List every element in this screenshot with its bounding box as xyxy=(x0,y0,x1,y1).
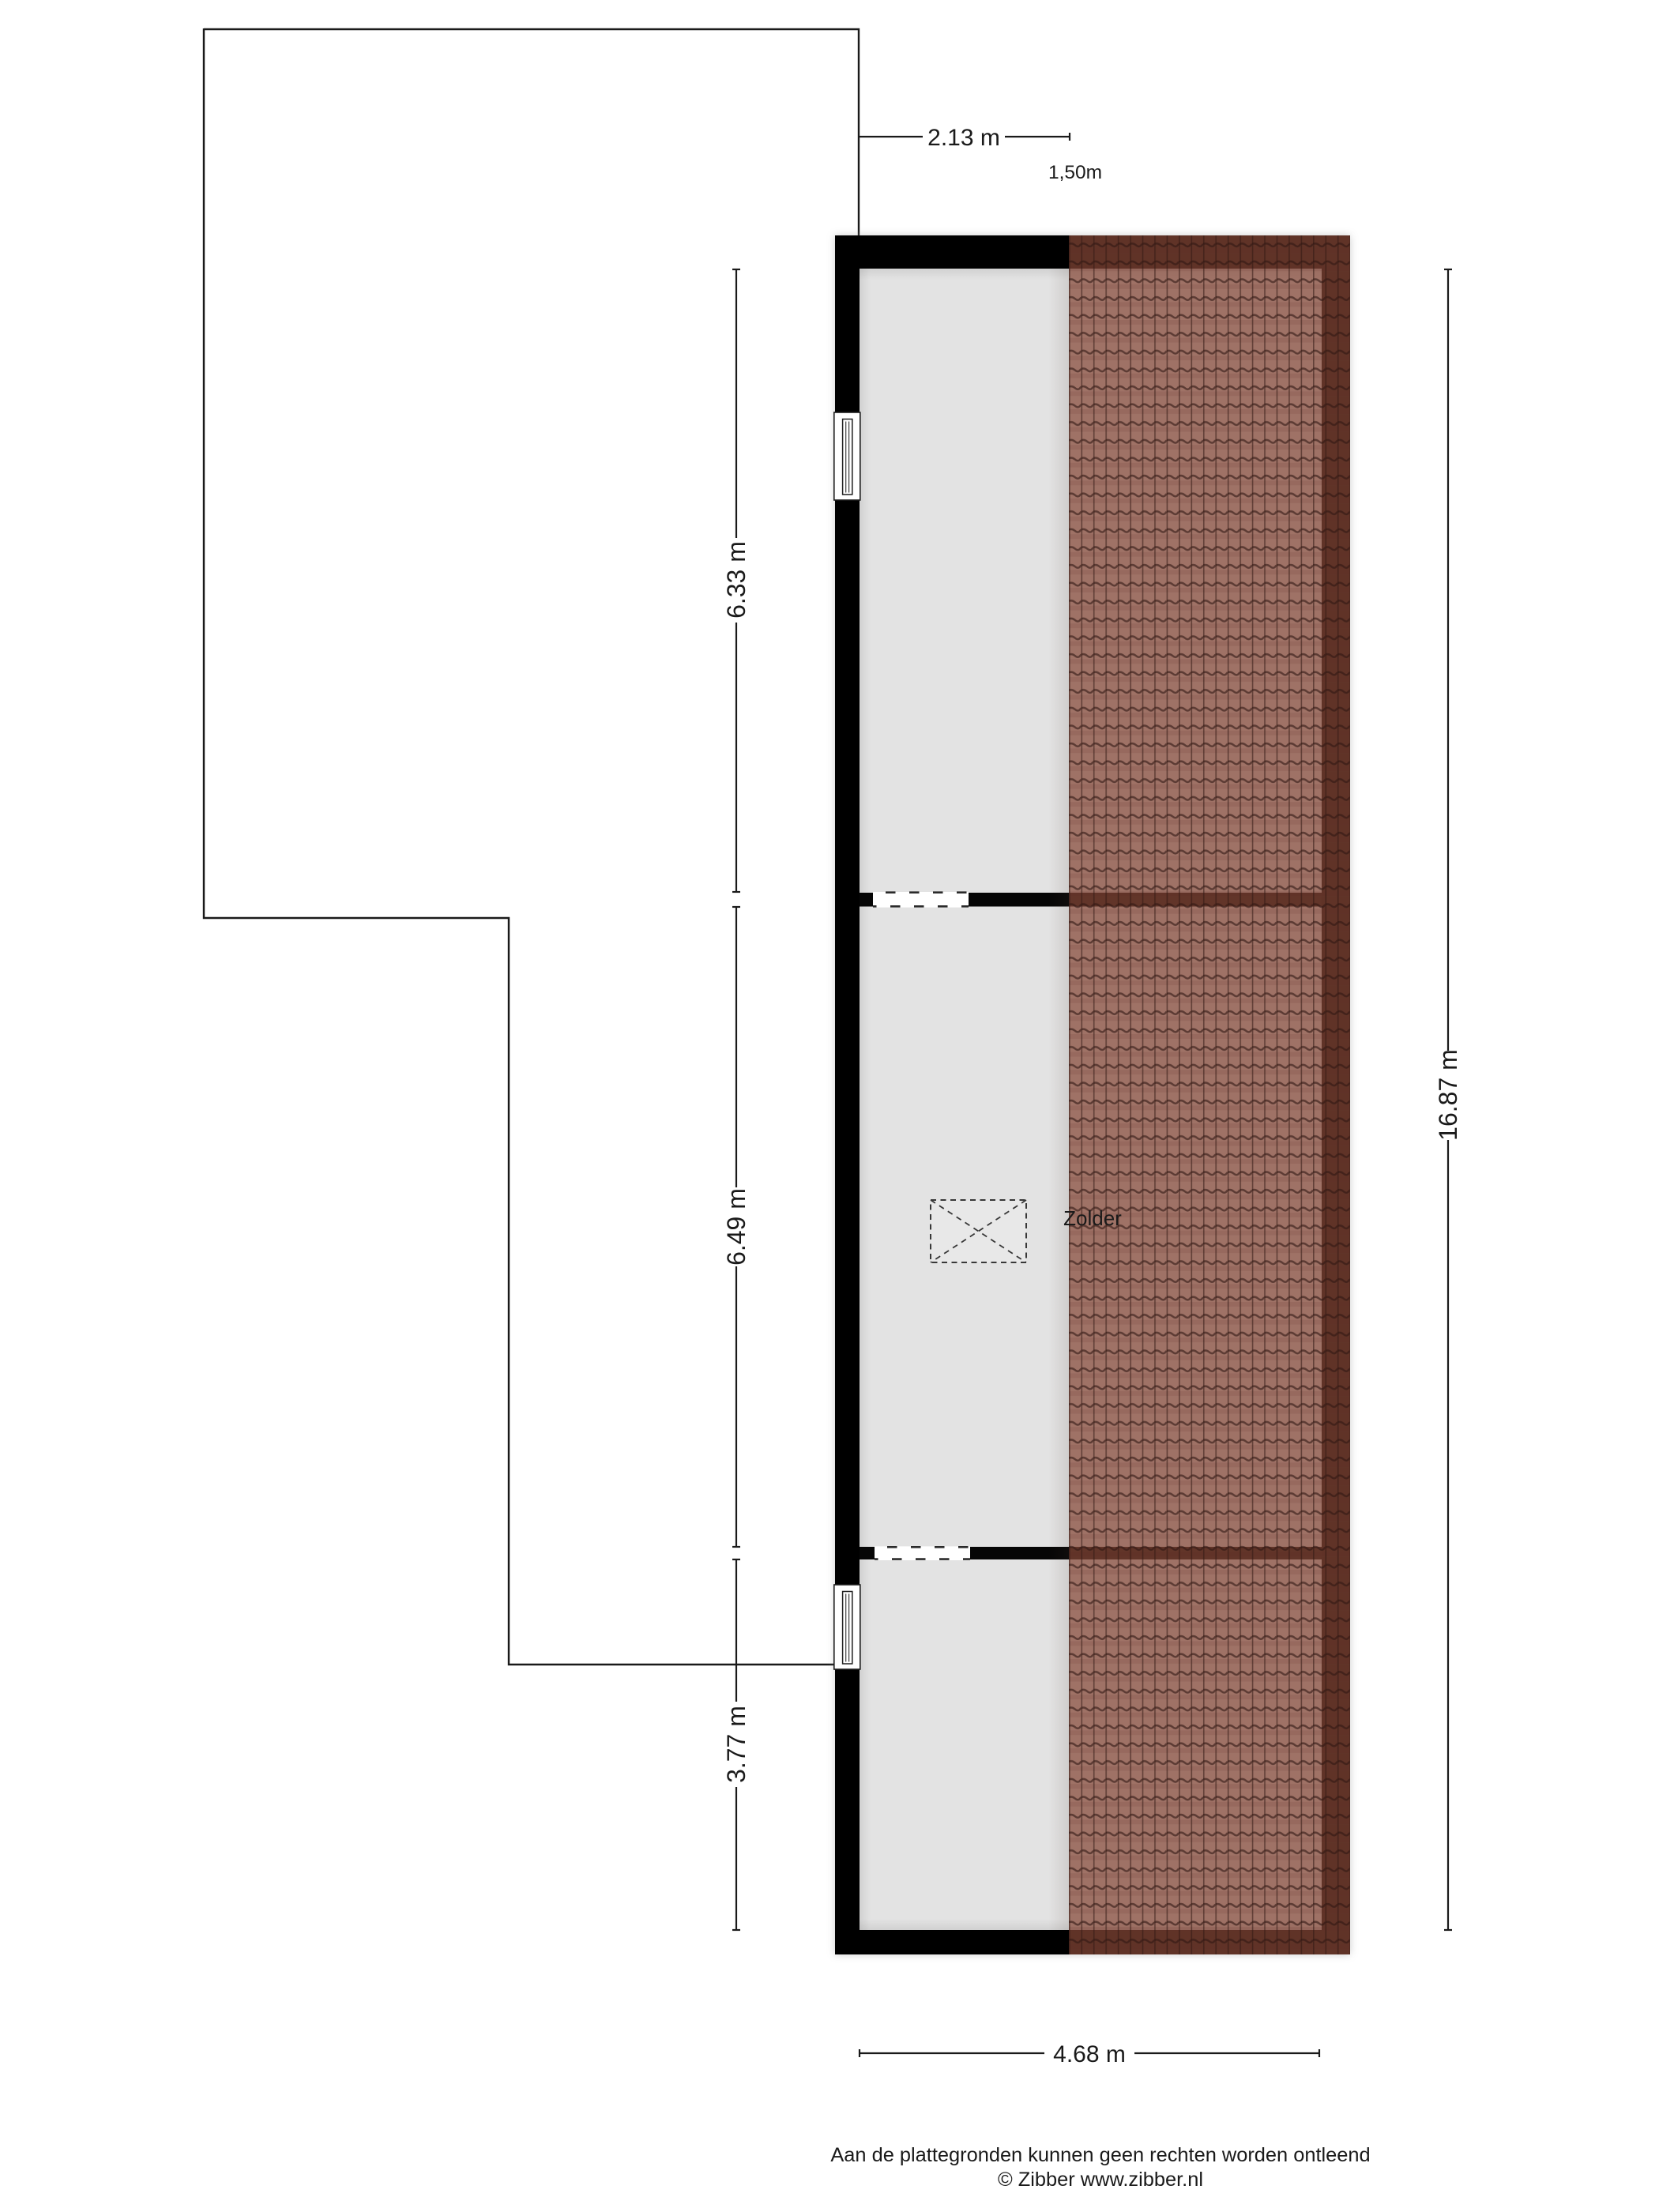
svg-text:2.13 m: 2.13 m xyxy=(927,125,1000,151)
svg-text:Aan de plattegronden kunnen ge: Aan de plattegronden kunnen geen rechten… xyxy=(830,2144,1370,2166)
svg-text:1,50m: 1,50m xyxy=(1048,162,1102,183)
svg-text:3.77 m: 3.77 m xyxy=(722,1706,750,1783)
svg-text:4.68 m: 4.68 m xyxy=(1053,2041,1126,2067)
svg-text:© Zibber www.zibber.nl: © Zibber www.zibber.nl xyxy=(998,2169,1203,2191)
svg-text:16.87 m: 16.87 m xyxy=(1434,1049,1462,1141)
svg-text:6.49 m: 6.49 m xyxy=(722,1188,750,1266)
svg-text:Zolder: Zolder xyxy=(1063,1206,1122,1230)
svg-text:6.33 m: 6.33 m xyxy=(722,541,750,619)
